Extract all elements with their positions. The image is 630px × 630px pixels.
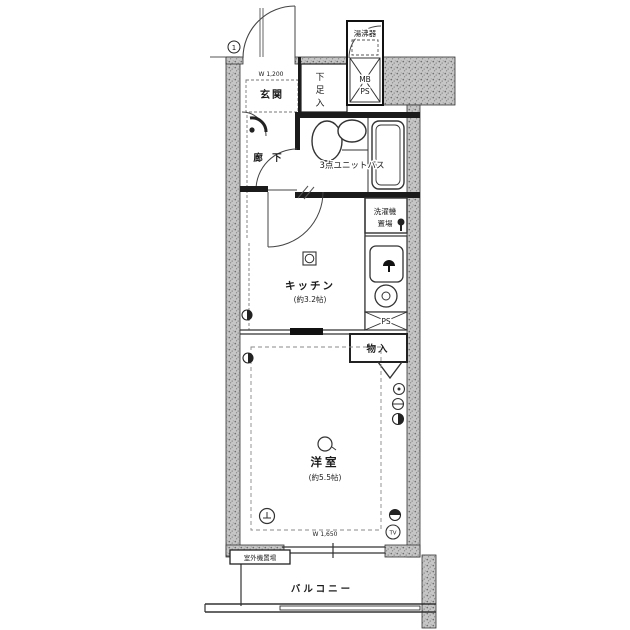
washbasin-icon bbox=[338, 120, 366, 142]
unit-bath-label: 3点ユニットバス bbox=[320, 161, 385, 171]
room-floor-dash bbox=[251, 347, 381, 530]
stove-burner-icon bbox=[375, 285, 397, 307]
bath-wall-bottom bbox=[295, 192, 420, 198]
closet-label: 物入 bbox=[366, 343, 389, 355]
unit-marker: 1 bbox=[232, 44, 236, 52]
kitchen-size-label: (約3.2帖) bbox=[294, 294, 327, 304]
balcony-label: バルコニー bbox=[291, 583, 353, 595]
kitchen-label: キッチン bbox=[285, 280, 335, 292]
wall-right bbox=[407, 105, 420, 557]
balcony-window bbox=[282, 543, 385, 558]
water-heater-label: 湯沸器 bbox=[354, 28, 377, 38]
washer-label-1: 洗濯機 bbox=[374, 206, 397, 216]
toilet-icon bbox=[312, 121, 342, 161]
washer-area: 洗濯機 置場 bbox=[365, 198, 407, 233]
hallway-wall-stub bbox=[240, 186, 268, 192]
room-light-icon bbox=[318, 437, 332, 451]
hallway: 廊 下 bbox=[240, 115, 323, 247]
shoe-storage-char2: 足 bbox=[315, 85, 324, 96]
outlet-icon-bottom-fill bbox=[390, 510, 401, 515]
room-label: 洋室 bbox=[311, 455, 340, 469]
pipe-space: PS bbox=[365, 312, 407, 330]
bath-wall-top bbox=[295, 112, 420, 118]
room-size-label: (約5.5帖) bbox=[309, 472, 342, 482]
washer-faucet-icon bbox=[398, 219, 405, 226]
outlet-icon-right-fill bbox=[398, 414, 404, 425]
closet: 物入 bbox=[350, 334, 407, 378]
closet-fold-door bbox=[378, 362, 402, 378]
partition-solid bbox=[290, 328, 323, 335]
room-light-nub bbox=[332, 447, 336, 450]
bathtub-icon bbox=[372, 121, 404, 189]
balcony-rail-panel bbox=[280, 606, 420, 610]
entrance-dim: W 1,200 bbox=[258, 71, 283, 78]
shoe-storage: 下 足 入 bbox=[298, 57, 347, 112]
ps-label: PS bbox=[381, 317, 391, 326]
wall-block-top-right bbox=[383, 57, 455, 105]
partition bbox=[240, 328, 365, 335]
tv-outlet-label: TV bbox=[388, 531, 396, 537]
genkan-dot bbox=[249, 127, 254, 132]
bath-wall-left bbox=[295, 118, 300, 150]
floorplan-image: 玄関 W 1,200 1 下 足 入 湯沸器 MB PS bbox=[0, 0, 630, 630]
floorplan-svg: 玄関 W 1,200 1 下 足 入 湯沸器 MB PS bbox=[0, 0, 630, 630]
entrance-door-arc bbox=[243, 6, 295, 58]
washer-label-2: 置場 bbox=[378, 218, 393, 228]
entrance-label: 玄関 bbox=[260, 88, 284, 101]
window-dim: W 1,650 bbox=[312, 531, 337, 538]
kitchen-door-arc bbox=[268, 192, 323, 247]
mb-label: MB bbox=[359, 75, 371, 84]
wall-bottom-right bbox=[385, 545, 420, 557]
hallway-label: 廊 下 bbox=[253, 152, 284, 164]
wall-top-mid bbox=[295, 57, 347, 64]
wall-top-left bbox=[226, 57, 243, 64]
mb-ps-label: PS bbox=[360, 87, 370, 96]
shoe-storage-char1: 下 bbox=[315, 73, 324, 83]
shoe-storage-char3: 入 bbox=[315, 98, 324, 109]
wall-balcony-right bbox=[422, 555, 436, 628]
meter-box-area: 湯沸器 MB PS bbox=[347, 21, 383, 105]
switch-icon-1-dot bbox=[398, 388, 401, 391]
balcony: バルコニー 室外機置場 bbox=[205, 550, 436, 612]
wall-left bbox=[226, 57, 240, 557]
outdoor-unit-label: 室外機置場 bbox=[244, 553, 277, 562]
